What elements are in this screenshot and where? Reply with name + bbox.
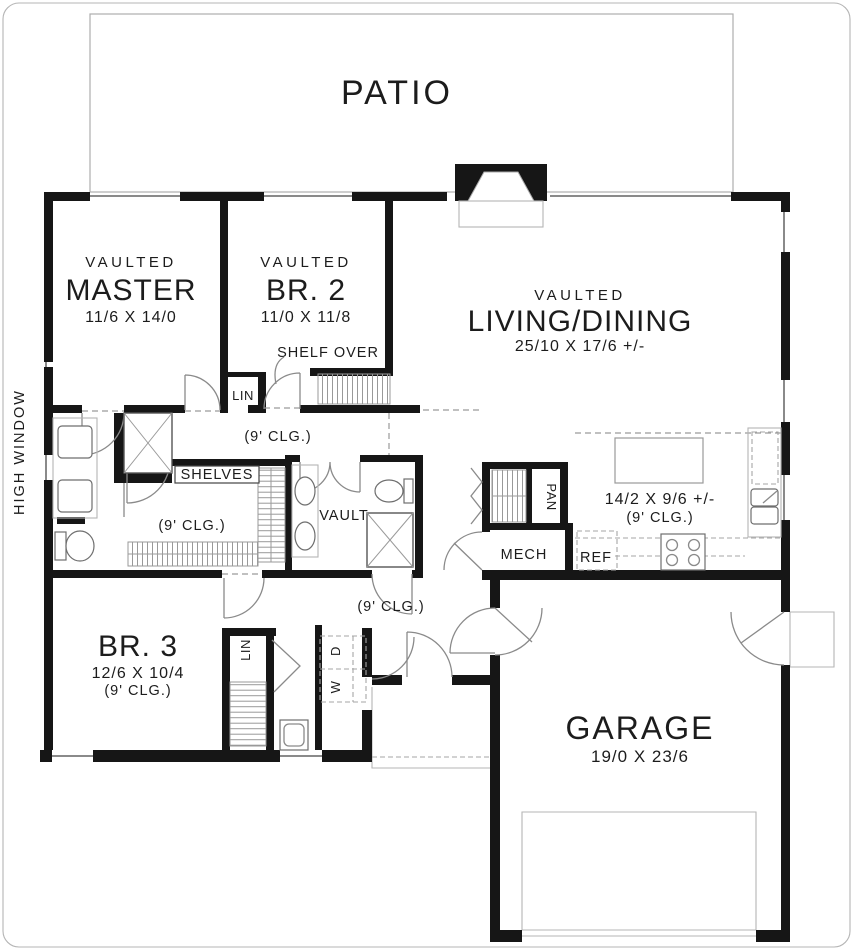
kitchen-island — [615, 438, 703, 483]
floor-plan-page: PATIO VAULTED MASTER 11/6 X 14/0 VAULTED… — [0, 0, 853, 950]
br3-door — [224, 578, 264, 618]
lin-lower-label: LIN — [238, 639, 253, 661]
shelves-label: SHELVES — [181, 467, 254, 483]
linen-shelves-hatch — [230, 682, 266, 746]
pantry-label: PAN — [544, 483, 559, 510]
fireplace-hearth — [459, 201, 543, 227]
shelf-over-label: SHELF OVER — [277, 345, 379, 361]
br2-door — [264, 373, 300, 409]
garage-dims: 19/0 X 23/6 — [591, 747, 689, 766]
hall-ceiling-label: (9' CLG.) — [244, 429, 311, 445]
ref-label: REF — [580, 550, 612, 566]
kitchen-dims: 14/2 X 9/6 +/- — [605, 491, 716, 508]
shelf-over-hatch — [318, 374, 390, 404]
br3-name: BR. 3 — [98, 630, 178, 663]
br2-tag: VAULTED — [260, 254, 351, 271]
vault-vanity — [292, 465, 318, 557]
garage-entry-door — [450, 608, 542, 655]
washer-label: W — [328, 680, 343, 693]
master-toilet — [55, 531, 94, 561]
laundry-closet-door — [372, 637, 414, 679]
garage-name: GARAGE — [566, 710, 715, 746]
master-vanity — [53, 418, 97, 518]
stove — [661, 534, 705, 570]
br2-dims: 11/0 X 11/8 — [261, 309, 351, 326]
lin-upper-label: LIN — [232, 388, 254, 403]
closet-hatching — [128, 374, 526, 746]
mech-door — [444, 532, 482, 570]
vault-label: VAULT — [319, 508, 369, 524]
washer-dryer-shelving — [320, 636, 366, 702]
master-dims: 11/6 X 14/0 — [85, 309, 177, 326]
floor-plan-drawing: PATIO VAULTED MASTER 11/6 X 14/0 VAULTED… — [0, 0, 853, 950]
br3-dims: 12/6 X 10/4 — [92, 665, 185, 682]
upper-cabinet-dashed — [752, 432, 778, 484]
br2-name: BR. 2 — [266, 274, 346, 307]
kitchen-ceiling: (9' CLG.) — [626, 510, 693, 526]
dryer-label: D — [328, 646, 343, 656]
patio-label: PATIO — [341, 74, 453, 112]
master-door — [185, 375, 220, 410]
kitchen-sink — [751, 489, 778, 524]
master-tag: VAULTED — [85, 254, 176, 271]
living-name: LIVING/DINING — [468, 305, 693, 338]
br3-ceiling: (9' CLG.) — [104, 683, 171, 699]
living-tag: VAULTED — [534, 287, 625, 304]
laundry-nook-doors — [272, 640, 300, 692]
foyer-ceiling-label: (9' CLG.) — [357, 599, 424, 615]
closet-ceiling-label: (9' CLG.) — [158, 518, 225, 534]
porch-stoop-garagedoor-outlines — [372, 612, 834, 936]
garage-side-door — [731, 612, 784, 665]
coat-closet-bifold — [471, 468, 482, 524]
vault-toilet — [375, 479, 413, 503]
laundry-tub — [280, 720, 308, 750]
vault-shower — [367, 513, 413, 567]
mech-label: MECH — [501, 547, 548, 563]
high-window-label: HIGH WINDOW — [12, 389, 28, 515]
master-name: MASTER — [65, 274, 196, 307]
living-dims: 25/10 X 17/6 +/- — [515, 338, 645, 355]
master-shower — [124, 413, 172, 473]
